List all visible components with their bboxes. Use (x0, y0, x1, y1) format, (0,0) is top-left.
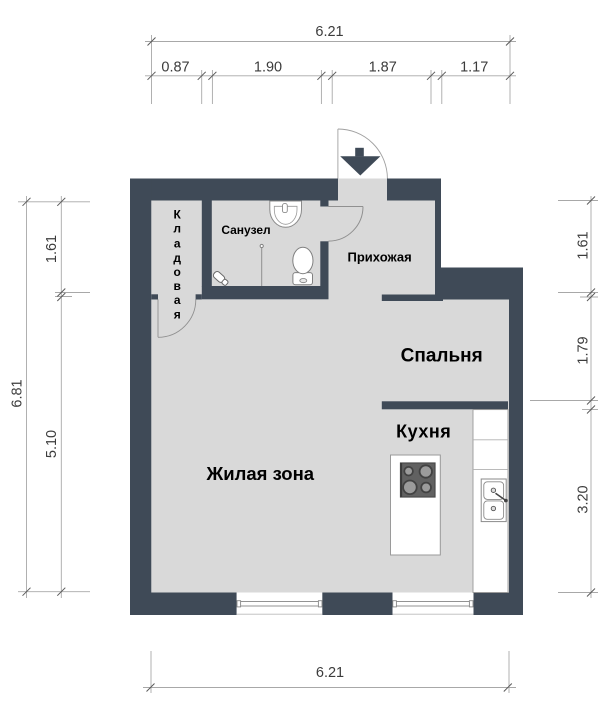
svg-text:я: я (174, 308, 181, 322)
svg-text:л: л (173, 222, 181, 236)
svg-text:5.10: 5.10 (44, 430, 60, 458)
svg-text:1.61: 1.61 (44, 235, 60, 263)
svg-text:1.61: 1.61 (576, 231, 592, 259)
svg-text:1.17: 1.17 (460, 60, 488, 76)
svg-text:а: а (174, 236, 181, 250)
svg-text:а: а (174, 293, 181, 307)
svg-text:3.20: 3.20 (576, 485, 592, 513)
svg-text:6.81: 6.81 (10, 379, 26, 407)
svg-text:Жилая зона: Жилая зона (206, 463, 315, 484)
svg-text:К: К (174, 208, 182, 222)
svg-text:д: д (173, 251, 181, 265)
svg-text:Кухня: Кухня (396, 422, 451, 442)
svg-text:6.21: 6.21 (316, 665, 344, 681)
svg-text:1.90: 1.90 (254, 60, 282, 76)
svg-text:Санузел: Санузел (221, 223, 270, 237)
svg-text:1.79: 1.79 (576, 336, 592, 364)
svg-text:6.21: 6.21 (315, 24, 343, 40)
svg-text:в: в (174, 279, 181, 293)
svg-text:0.87: 0.87 (161, 60, 189, 76)
svg-text:1.87: 1.87 (369, 60, 397, 76)
svg-text:Спальня: Спальня (401, 345, 483, 366)
svg-text:о: о (174, 265, 181, 279)
svg-text:Прихожая: Прихожая (348, 249, 412, 264)
